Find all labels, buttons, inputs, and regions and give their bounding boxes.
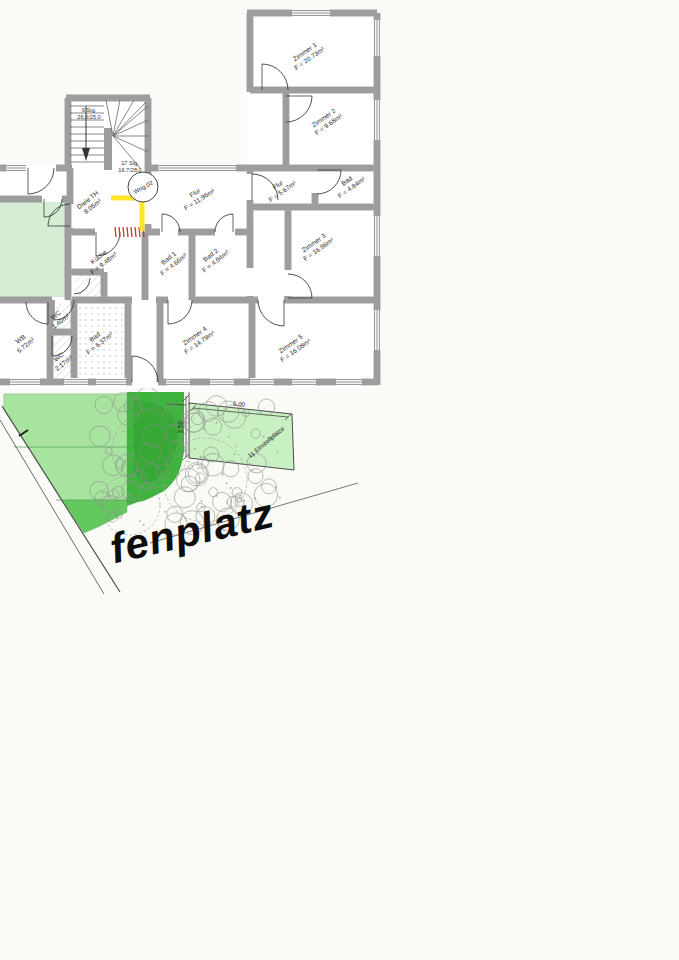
scanned-floorplan-page: Zimmer 1F = 20.73m² Zimmer 2F = 9.68m² F… [0, 0, 679, 960]
bath-tile-floor [77, 303, 123, 379]
apartment-badge-circle [128, 172, 158, 202]
green-room-floor [0, 202, 65, 297]
floor-plan-drawing [0, 0, 679, 960]
